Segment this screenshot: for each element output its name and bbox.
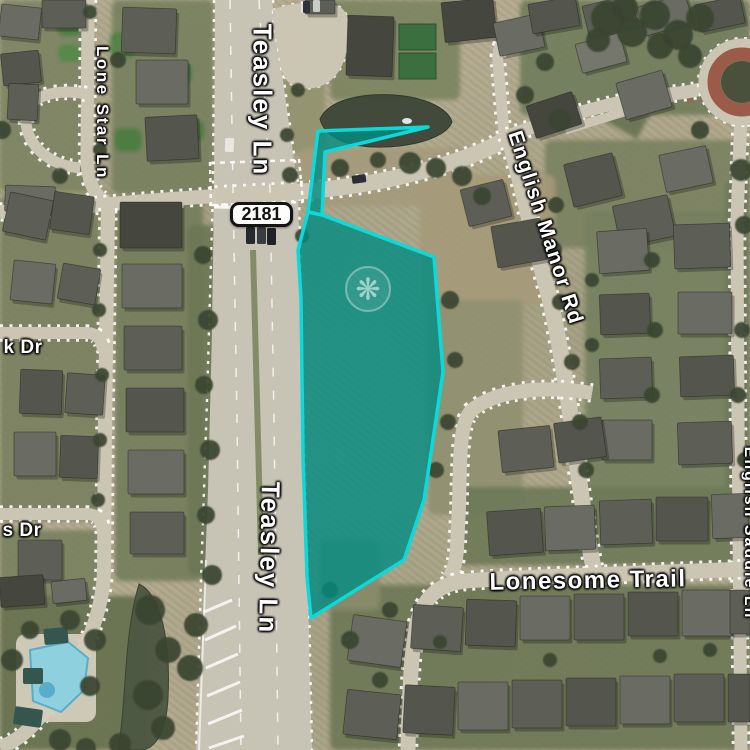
house	[51, 578, 90, 607]
tree	[331, 159, 349, 177]
house-roof	[602, 420, 652, 460]
tree	[95, 368, 109, 382]
house	[136, 60, 191, 108]
tree	[473, 187, 491, 205]
house	[620, 676, 673, 728]
house	[673, 223, 733, 273]
tree	[84, 629, 106, 651]
house-roof	[50, 191, 95, 234]
road-english-saddle-ln	[737, 114, 741, 750]
lawn-patch	[114, 128, 142, 152]
tree	[194, 246, 212, 264]
tree	[516, 86, 534, 104]
tree	[155, 637, 181, 663]
house-roof	[14, 432, 56, 476]
house	[574, 594, 627, 644]
car	[303, 1, 310, 13]
map-canvas: ❋	[0, 0, 750, 750]
house	[346, 15, 397, 80]
tree	[686, 4, 714, 32]
house-roof	[343, 689, 401, 739]
tree	[572, 414, 588, 430]
house-roof	[599, 293, 650, 335]
tree	[200, 440, 220, 460]
house-roof	[458, 682, 508, 730]
tree	[83, 5, 97, 19]
house	[121, 7, 179, 57]
house	[0, 4, 44, 44]
house-roof	[620, 676, 670, 724]
house	[498, 425, 557, 476]
watermark-layer: ❋	[346, 267, 390, 311]
house-roof	[711, 493, 749, 538]
house	[458, 682, 511, 734]
tree	[80, 676, 100, 696]
house-roof	[57, 263, 101, 305]
house-roof	[679, 355, 734, 397]
house	[7, 83, 42, 124]
tree	[93, 143, 107, 157]
house	[42, 0, 89, 32]
tree	[92, 303, 106, 317]
tree	[1, 649, 23, 671]
tree	[703, 643, 717, 657]
house-roof	[544, 505, 596, 551]
tree	[135, 595, 165, 625]
house	[728, 674, 750, 726]
tree	[734, 322, 750, 338]
house-roof	[136, 60, 188, 104]
car	[267, 228, 276, 245]
house-roof	[128, 450, 184, 494]
tree	[640, 0, 670, 30]
house	[599, 499, 655, 548]
house-roof	[566, 678, 616, 726]
tree	[691, 121, 709, 139]
house-roof	[59, 435, 98, 478]
house-roof	[346, 15, 394, 77]
house	[126, 388, 187, 436]
house	[120, 202, 185, 252]
house-roof	[126, 388, 184, 432]
house-roof	[51, 578, 87, 603]
house	[128, 450, 187, 498]
house-roof	[678, 292, 732, 334]
sport-court	[399, 53, 436, 79]
house	[711, 493, 750, 542]
tree	[433, 635, 447, 649]
house-roof	[18, 540, 62, 580]
pond-fountain	[402, 118, 412, 124]
tree	[586, 28, 610, 52]
house-roof	[574, 594, 624, 640]
tree	[93, 243, 107, 257]
house	[597, 228, 653, 277]
tree	[585, 273, 599, 287]
house	[465, 599, 519, 650]
tree	[543, 653, 557, 667]
house	[0, 574, 48, 611]
house	[0, 50, 44, 90]
house	[124, 326, 185, 374]
house-roof	[124, 326, 182, 370]
house-roof	[677, 421, 732, 465]
tree	[578, 462, 594, 478]
house	[342, 689, 403, 743]
tree	[678, 44, 702, 68]
house-roof	[597, 228, 650, 273]
tree	[447, 352, 463, 368]
house	[14, 432, 59, 480]
house-roof	[0, 50, 41, 86]
tree	[552, 294, 568, 310]
house	[403, 685, 458, 739]
tree	[585, 338, 599, 352]
house-roof	[682, 590, 732, 636]
house	[678, 292, 735, 338]
spa-pool	[39, 682, 55, 698]
house	[122, 264, 185, 312]
tree	[452, 166, 472, 186]
tree	[440, 414, 456, 430]
tree	[536, 53, 554, 71]
house	[19, 369, 65, 418]
tree	[644, 387, 660, 403]
house	[544, 505, 598, 554]
tree	[195, 376, 213, 394]
tree	[177, 655, 203, 681]
tree	[202, 565, 222, 585]
tree	[644, 252, 660, 268]
tree	[49, 729, 71, 750]
satellite-map-view[interactable]: ❋ Teasley LnLone Star LnEnglish Manor Rd…	[0, 0, 750, 750]
house-roof	[0, 4, 42, 40]
tree	[549, 109, 571, 131]
house-roof	[2, 192, 53, 240]
house-roof	[120, 202, 182, 248]
house	[57, 263, 104, 309]
tree	[647, 322, 663, 338]
house-roof	[487, 508, 544, 556]
car	[257, 227, 266, 244]
house	[679, 355, 737, 400]
tree	[184, 613, 208, 637]
house-roof	[121, 7, 177, 54]
house	[10, 260, 59, 308]
sport-court	[399, 24, 436, 50]
car	[313, 0, 320, 12]
house	[145, 115, 202, 165]
tree	[426, 158, 446, 178]
house-roof	[674, 674, 724, 722]
house-roof	[491, 218, 548, 268]
car	[225, 138, 235, 152]
house	[677, 421, 735, 468]
tree	[282, 167, 298, 183]
tree	[291, 83, 305, 97]
house-roof	[403, 685, 455, 736]
house	[566, 678, 619, 730]
house-roof	[673, 223, 731, 269]
house-roof	[730, 590, 750, 634]
tree	[653, 649, 667, 663]
house-roof	[122, 264, 182, 308]
tree	[280, 128, 294, 142]
tree	[110, 52, 126, 68]
house-roof	[42, 0, 86, 28]
watermark-snowflake-icon: ❋	[355, 274, 380, 307]
house-roof	[498, 425, 554, 472]
house	[130, 512, 187, 558]
house	[491, 218, 551, 272]
house	[487, 508, 547, 559]
tree	[91, 493, 105, 507]
tree	[197, 506, 215, 524]
house	[512, 680, 565, 732]
house-roof	[19, 369, 63, 414]
tree	[399, 152, 421, 174]
tree	[341, 631, 359, 649]
house-roof	[10, 260, 56, 304]
tree	[544, 241, 562, 259]
pool-pavilion-roof	[43, 627, 68, 645]
house	[674, 674, 727, 726]
house-roof	[728, 674, 750, 722]
tree	[548, 197, 564, 213]
tree	[441, 291, 459, 309]
car	[246, 227, 255, 244]
house-roof	[441, 0, 497, 43]
house	[599, 293, 653, 338]
house-roof	[628, 592, 678, 636]
tree	[370, 152, 386, 168]
house-roof	[512, 680, 562, 728]
house-roof	[145, 115, 199, 162]
tree	[730, 387, 746, 403]
tree	[198, 310, 218, 330]
tree	[60, 610, 80, 630]
tree	[93, 433, 107, 447]
tree	[372, 672, 388, 688]
house	[49, 191, 97, 238]
tree	[52, 168, 68, 184]
house	[602, 420, 655, 464]
tree	[133, 680, 163, 710]
pool-pavilion-roof	[23, 668, 43, 684]
house	[520, 596, 573, 644]
house-roof	[0, 575, 45, 608]
house	[656, 497, 711, 545]
house-roof	[656, 497, 708, 541]
house-roof	[520, 596, 570, 640]
house	[441, 0, 500, 46]
house	[628, 592, 681, 640]
house	[730, 590, 750, 638]
tree	[21, 621, 39, 639]
house-roof	[465, 599, 517, 647]
house-roof	[130, 512, 184, 554]
highway-shield-2181: 2181	[230, 202, 293, 227]
road-s-dr	[0, 514, 103, 532]
house	[682, 590, 735, 640]
house-roof	[599, 499, 653, 545]
house-roof	[7, 83, 39, 121]
tree	[382, 602, 398, 618]
tree	[151, 716, 175, 740]
tree	[564, 354, 580, 370]
tree	[647, 33, 673, 59]
highway-shield-number: 2181	[241, 204, 281, 225]
